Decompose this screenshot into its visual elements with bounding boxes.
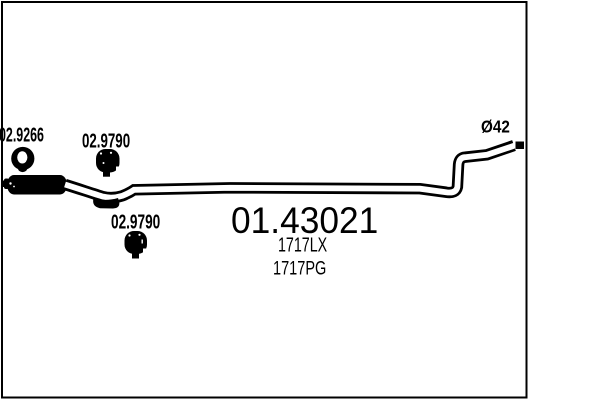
svg-text:1717PG: 1717PG — [273, 256, 326, 279]
svg-text:02.9266: 02.9266 — [0, 123, 44, 146]
svg-text:02.9790: 02.9790 — [82, 129, 130, 153]
svg-text:1717LX: 1717LX — [278, 233, 327, 256]
svg-text:Ø42: Ø42 — [481, 116, 510, 136]
svg-text:02.9790: 02.9790 — [111, 210, 160, 234]
